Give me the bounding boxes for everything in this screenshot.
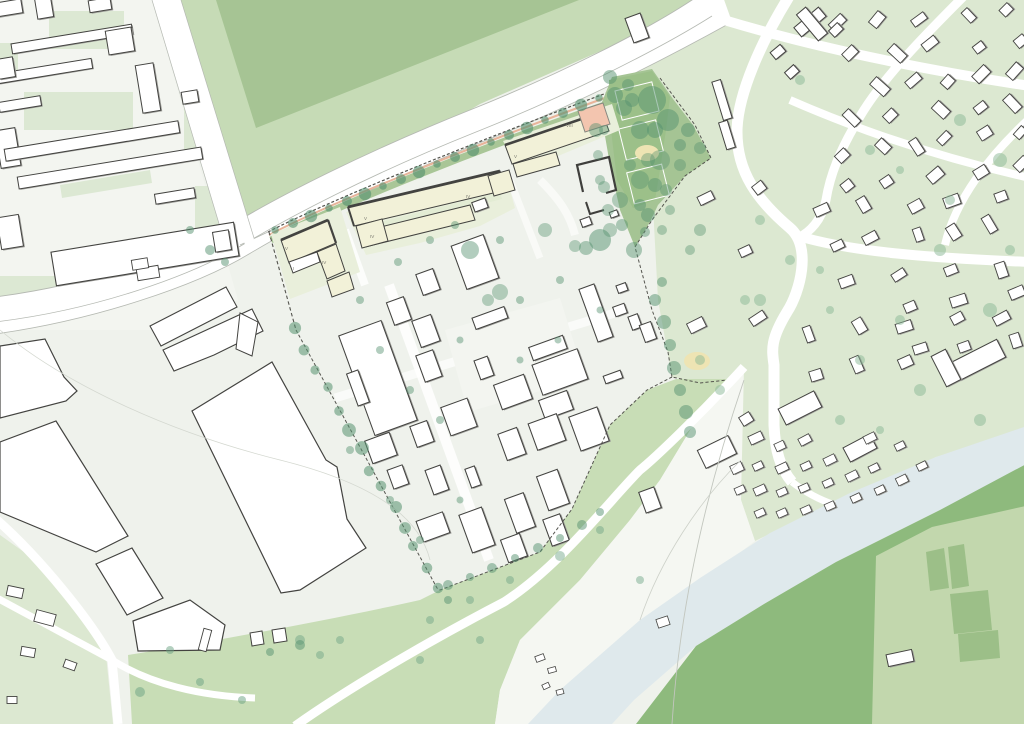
svg-text:V: V (514, 154, 517, 159)
svg-text:VIII: VIII (566, 123, 573, 128)
svg-text:I: I (293, 266, 294, 271)
svg-text:IV: IV (370, 234, 374, 239)
svg-text:V: V (285, 246, 288, 251)
svg-text:IV: IV (322, 260, 326, 265)
svg-text:IV: IV (466, 194, 470, 199)
svg-text:V: V (364, 216, 367, 221)
